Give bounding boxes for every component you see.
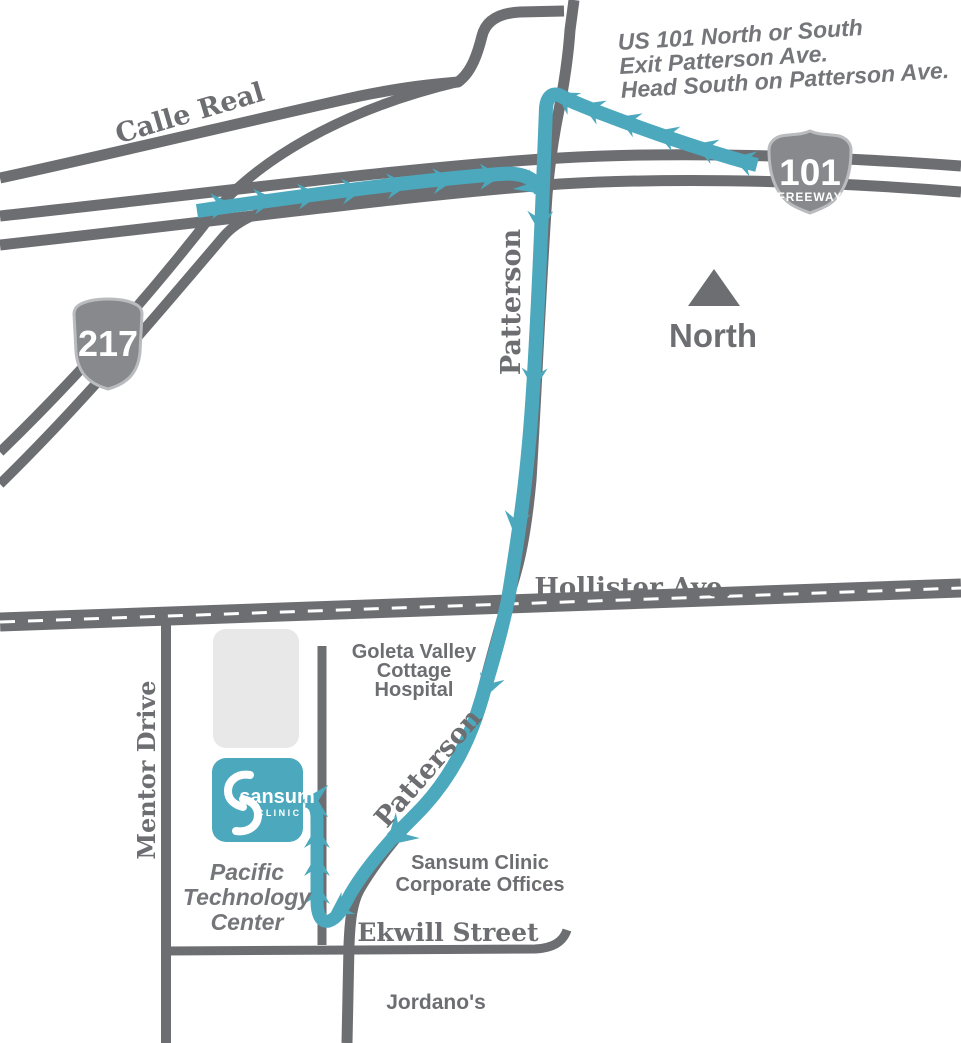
road-217-upper: [0, 82, 458, 452]
logo-wordmark: sansum: [239, 786, 315, 808]
jordanos-label: Jordano's: [386, 991, 486, 1014]
ca-217-shield: 217: [74, 299, 142, 389]
corporate-offices-label: Sansum Clinic Corporate Offices: [396, 852, 565, 896]
hospital-label: Goleta Valley Cottage Hospital: [352, 641, 477, 701]
north-label: North: [669, 317, 757, 354]
tech-center-label: Pacific Technology Center: [183, 859, 312, 935]
hollister-center-dashes: [0, 588, 961, 622]
us-101-shield: 101 FREEWAY: [769, 131, 851, 213]
logo-sub-wordmark: C L I N I C: [257, 808, 300, 818]
directions-map: 101 FREEWAY 217 North sansum C L I N I C…: [0, 0, 961, 1043]
north-indicator: North: [669, 269, 757, 354]
hollister-label: Hollister Ave.: [534, 573, 731, 603]
hospital-building: [213, 629, 299, 748]
ekwill-label: Ekwill Street: [357, 918, 539, 947]
exit-directions: US 101 North or South Exit Patterson Ave…: [617, 9, 950, 103]
tech-center-line-3: Center: [211, 909, 285, 935]
sansum-clinic-logo: sansum C L I N I C: [212, 758, 315, 842]
corporate-line-2: Corporate Offices: [396, 874, 565, 896]
shield-101-caption: FREEWAY: [777, 190, 842, 204]
shield-217-number: 217: [78, 323, 138, 364]
tech-center-line-1: Pacific: [210, 859, 284, 885]
tech-center-line-2: Technology: [183, 884, 312, 910]
hospital-line-3: Hospital: [375, 679, 454, 701]
north-arrow-icon: [688, 269, 740, 306]
map-canvas: 101 FREEWAY 217 North sansum C L I N I C…: [0, 0, 961, 1043]
corporate-line-1: Sansum Clinic: [411, 852, 549, 874]
route-101-south-segment: [543, 95, 757, 185]
mentor-drive-label: Mentor Drive: [132, 680, 161, 859]
patterson-lower-label: Patterson: [369, 703, 489, 834]
shield-101-number: 101: [779, 152, 841, 193]
patterson-upper-label: Patterson: [496, 229, 527, 376]
